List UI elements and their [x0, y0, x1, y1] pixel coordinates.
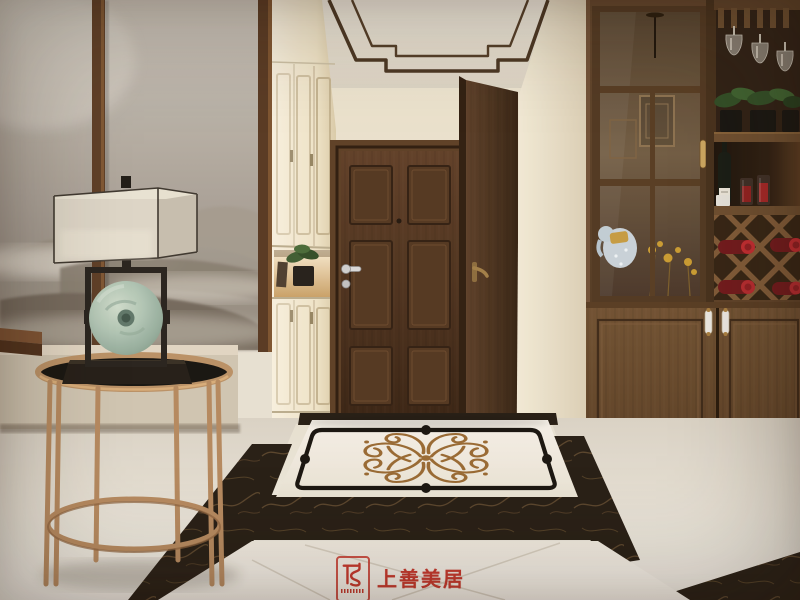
ambient-tint [0, 0, 800, 600]
watermark-logo: 上善美居 [336, 556, 465, 600]
interior-rendering: 上善美居 [0, 0, 800, 600]
brand-logo-icon [336, 556, 370, 600]
brand-name: 上善美居 [377, 563, 465, 592]
brand-fineprint [341, 589, 365, 591]
scene-canvas [0, 0, 800, 600]
shangshan-monogram-icon [341, 561, 365, 587]
